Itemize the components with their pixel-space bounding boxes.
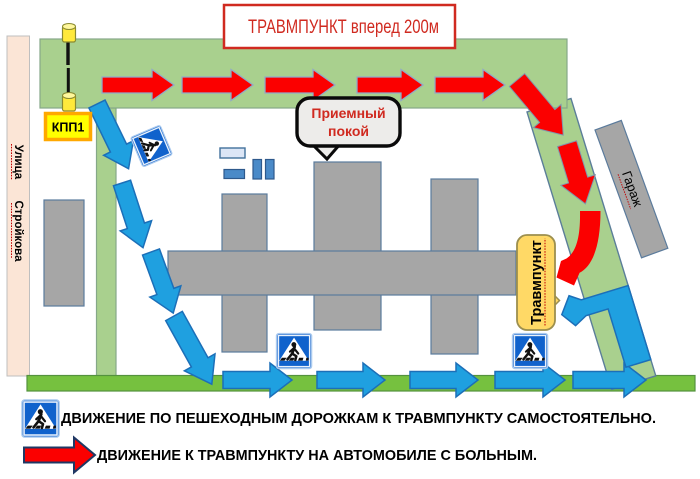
svg-text:ДВИЖЕНИЕ К ТРАВМПУНКТУ НА АВТ: ДВИЖЕНИЕ К ТРАВМПУНКТУ НА АВТОМОБИЛЕ С Б… <box>97 448 537 464</box>
svg-text:покой: покой <box>328 123 369 139</box>
svg-text:Приемный: Приемный <box>311 105 385 121</box>
svg-text:Травмпункт: Травмпункт <box>529 240 545 325</box>
svg-text:КПП1: КПП1 <box>52 121 85 135</box>
svg-text:Улица: Улица <box>12 145 24 180</box>
svg-text:Стройкова: Стройкова <box>12 201 24 263</box>
svg-text:ТРАВМПУНКТ вперед 200м: ТРАВМПУНКТ вперед 200м <box>248 16 439 38</box>
svg-text:ДВИЖЕНИЕ ПО ПЕШЕХОДНЫМ ДОРОЖК: ДВИЖЕНИЕ ПО ПЕШЕХОДНЫМ ДОРОЖКАМ К ТРАВМП… <box>61 411 656 427</box>
